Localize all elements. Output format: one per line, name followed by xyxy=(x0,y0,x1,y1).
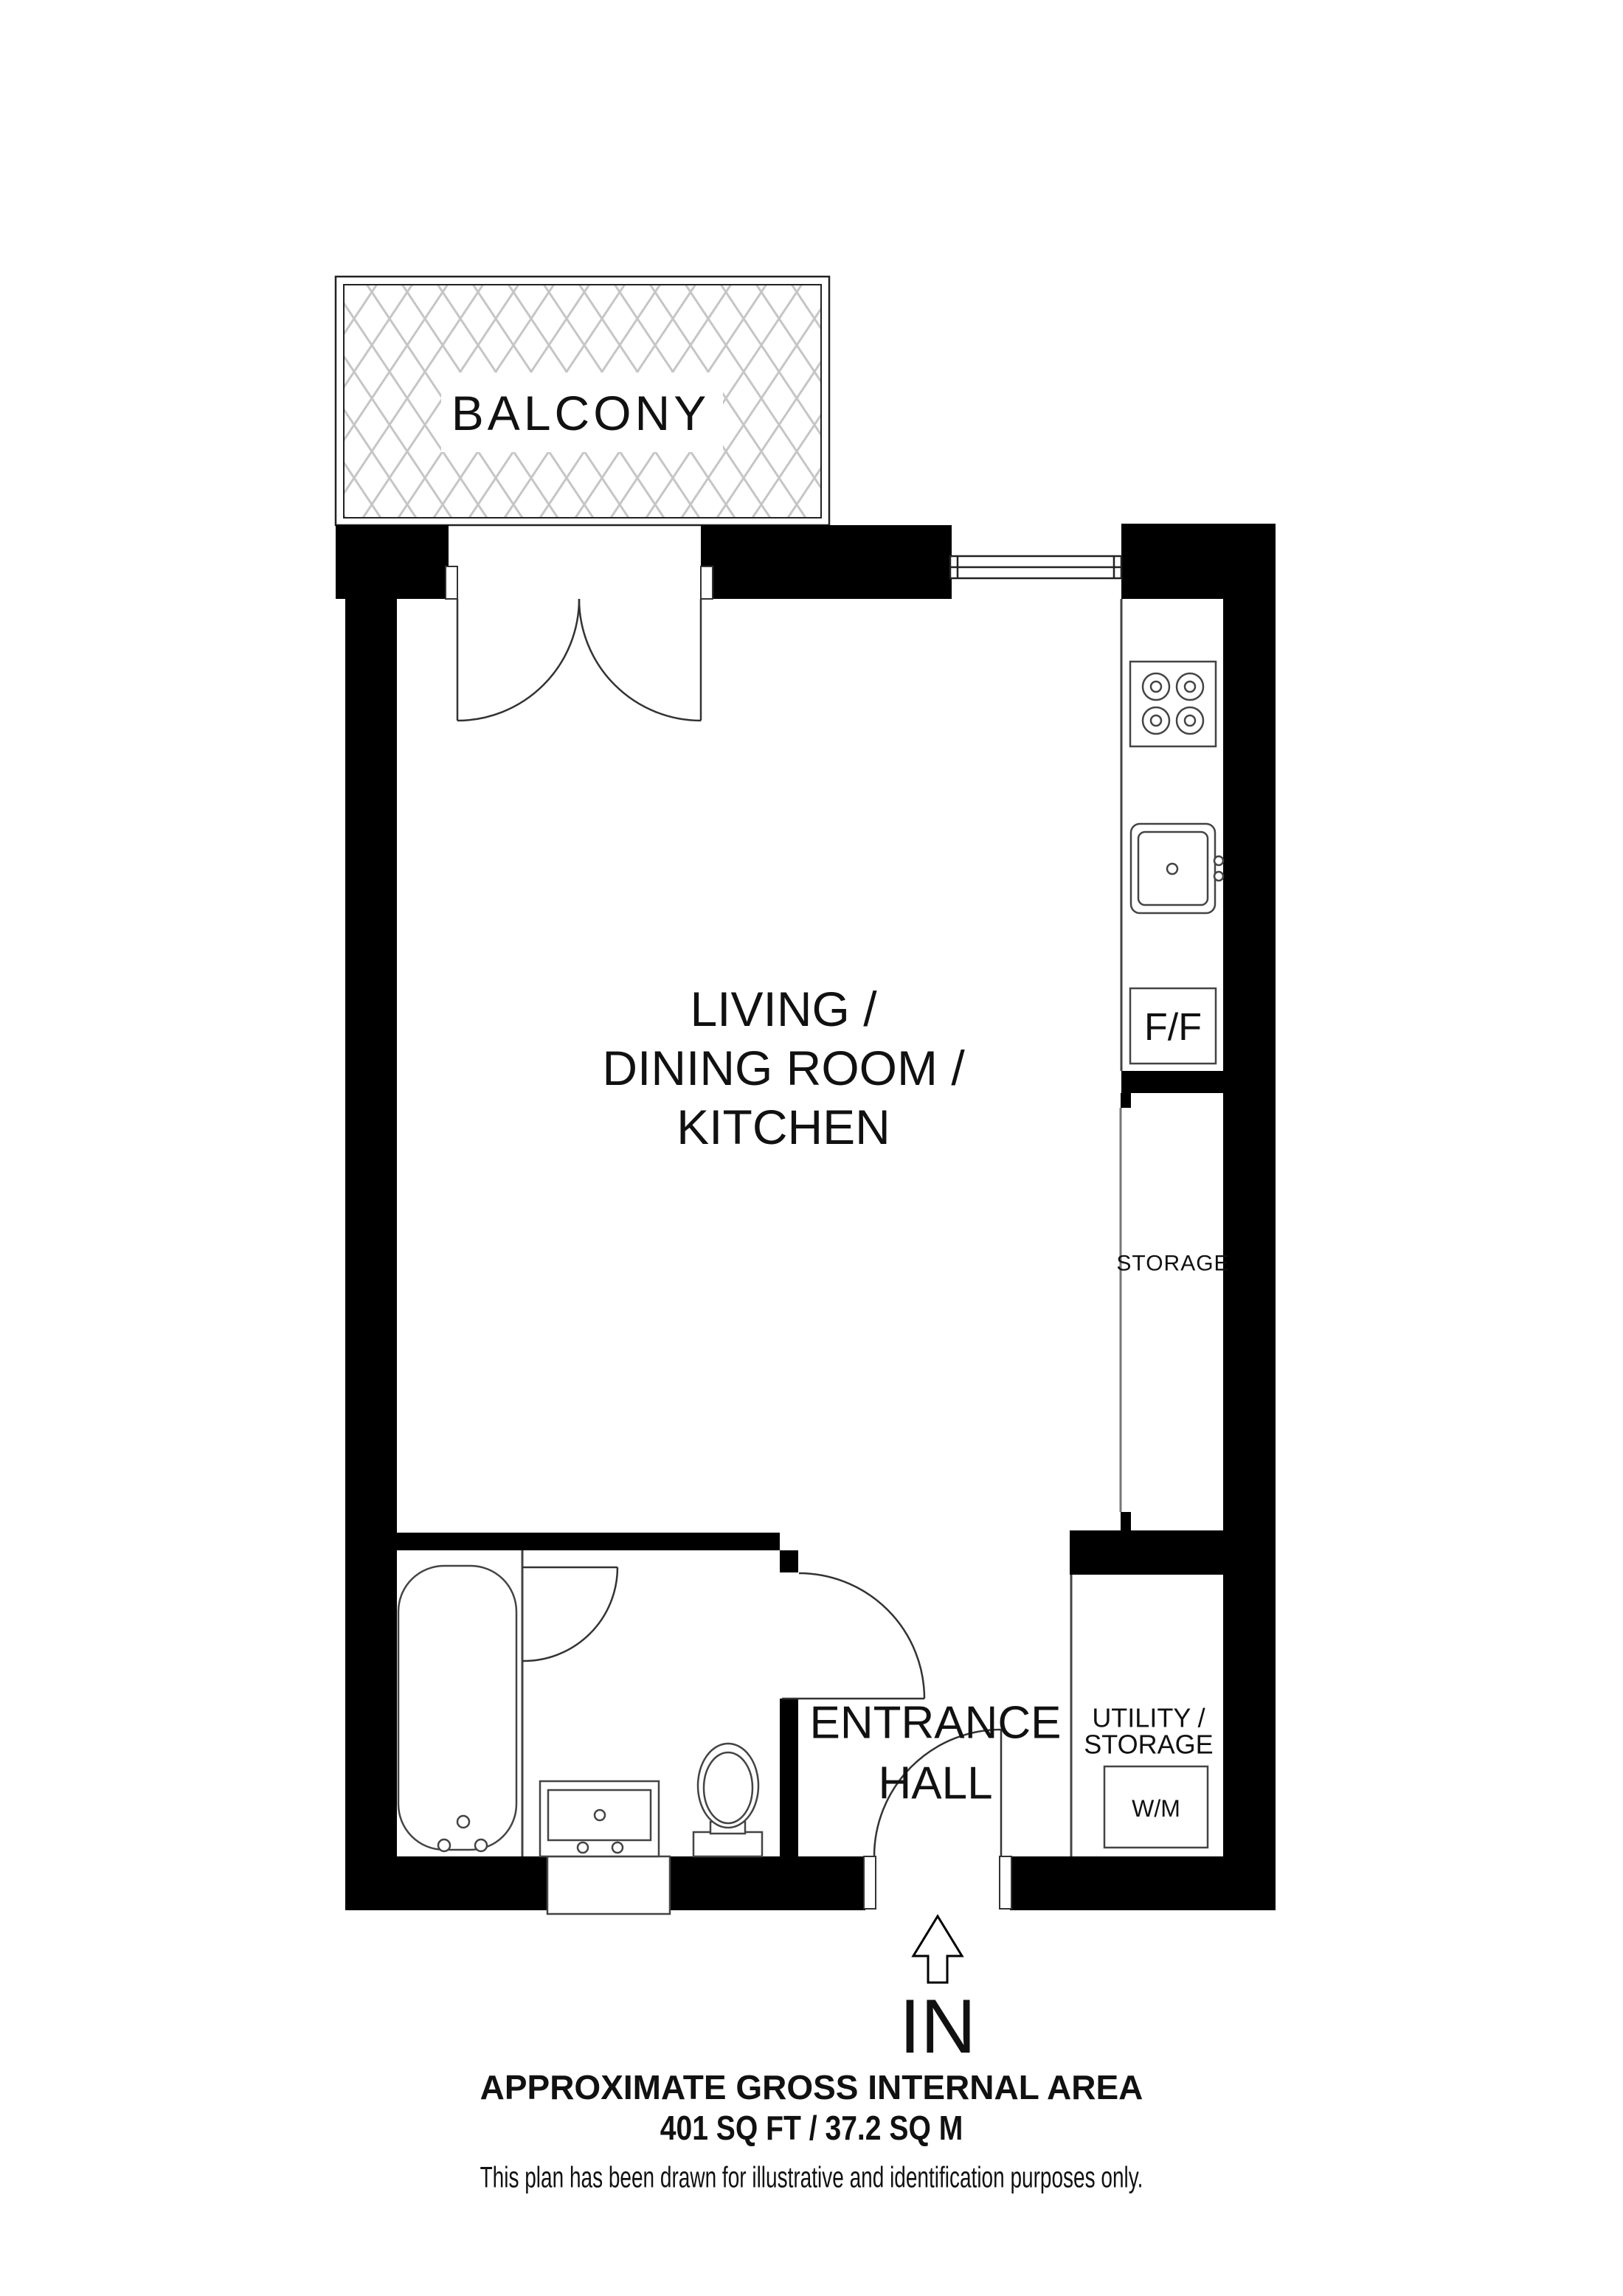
wall-utility-top xyxy=(1070,1530,1223,1575)
kitchen-sink-icon xyxy=(1131,824,1223,913)
ff-label: F/F xyxy=(1144,1006,1202,1049)
wall-left xyxy=(345,599,397,1856)
entry-arrow-icon xyxy=(913,1916,962,1983)
wall-storage-nub-top xyxy=(1121,1093,1131,1108)
bathtub-icon xyxy=(398,1566,516,1851)
living-label-1: LIVING / xyxy=(690,982,877,1036)
area-title: APPROXIMATE GROSS INTERNAL AREA xyxy=(480,2068,1143,2106)
bathroom-door xyxy=(522,1567,617,1661)
wall-top-right xyxy=(1121,524,1276,599)
entrance-label-1: ENTRANCE xyxy=(809,1698,1061,1749)
wall-hall-bathroom xyxy=(780,1699,798,1856)
utility-label-2: STORAGE xyxy=(1084,1730,1213,1760)
storage-label: STORAGE xyxy=(1116,1252,1229,1276)
balcony-label: BALCONY xyxy=(451,386,710,440)
wall-right xyxy=(1223,597,1276,1910)
floor-plan-drawing: BALCONY xyxy=(0,0,1623,2296)
partition-lines xyxy=(522,599,1121,1856)
basin-cabinet-icon xyxy=(540,1781,670,1914)
wall-bathroom-top xyxy=(397,1533,780,1550)
footer: APPROXIMATE GROSS INTERNAL AREA 401 SQ F… xyxy=(480,2068,1143,2194)
entrance-label-2: HALL xyxy=(878,1758,992,1809)
wall-storage-nub-bottom xyxy=(1121,1512,1131,1530)
wall-hall-nub xyxy=(780,1550,798,1572)
living-label-2: DINING ROOM / xyxy=(602,1041,965,1095)
wall-top-middle xyxy=(701,525,952,599)
floor-plan-page: BALCONY xyxy=(0,0,1623,2296)
area-value: 401 SQ FT / 37.2 SQ M xyxy=(660,2109,963,2148)
wall-kitchen-storage-divider xyxy=(1121,1071,1223,1093)
hall-door xyxy=(782,1573,924,1699)
hob-icon xyxy=(1130,662,1216,746)
front-door xyxy=(864,1730,1011,1909)
wall-bottom-right xyxy=(1010,1856,1276,1910)
kitchen-window xyxy=(950,556,1121,578)
balcony-french-doors xyxy=(446,566,713,721)
wm-label: W/M xyxy=(1132,1795,1180,1822)
living-label-3: KITCHEN xyxy=(676,1100,890,1154)
wall-top-left xyxy=(336,525,449,599)
utility-label-1: UTILITY / xyxy=(1092,1703,1205,1733)
balcony: BALCONY xyxy=(336,277,829,525)
toilet-icon xyxy=(693,1744,762,1856)
in-label: IN xyxy=(899,1984,976,2070)
disclaimer-text: This plan has been drawn for illustrativ… xyxy=(480,2162,1143,2194)
